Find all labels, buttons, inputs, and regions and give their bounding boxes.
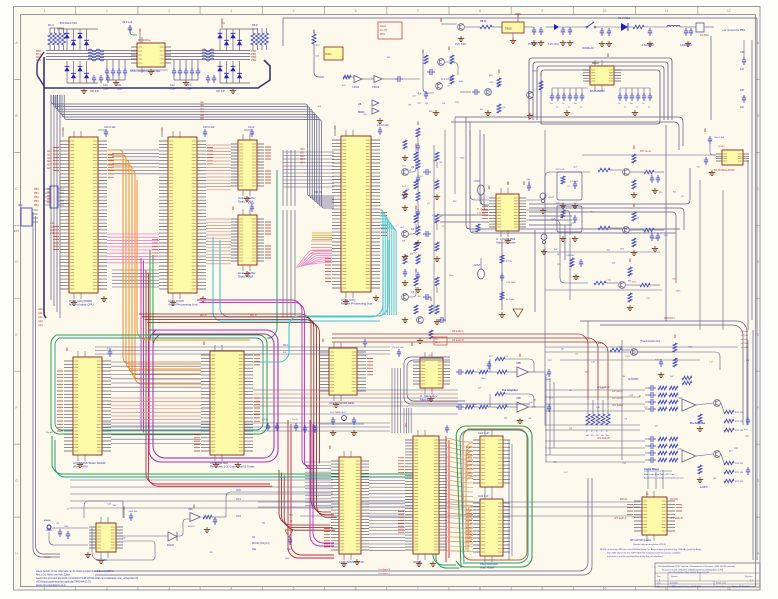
svg-text:+4V Ground for PBO: +4V Ground for PBO <box>722 29 745 32</box>
svg-text:7: 7 <box>417 9 419 13</box>
svg-text:Revision 2 Thumb: 1985-1995 2x: Revision 2 Thumb: 1985-1995 2xModel (2p0… <box>662 570 724 572</box>
svg-text:PB3: PB3 <box>34 200 39 203</box>
svg-text:5.2V CPU: 5.2V CPU <box>548 43 559 46</box>
svg-text:Size: Size <box>657 576 661 578</box>
svg-text:2: 2 <box>106 587 108 591</box>
svg-text:PB0: PB0 <box>34 188 39 191</box>
svg-text:Audio Mixer: Audio Mixer <box>644 467 659 471</box>
svg-text:G: G <box>15 479 18 483</box>
svg-text:10k: 10k <box>591 435 594 437</box>
svg-text:C9 0.1uF: C9 0.1uF <box>122 21 133 24</box>
svg-text:uP1 audio A: uP1 audio A <box>614 517 627 520</box>
svg-text:R1-4: R1-4 <box>48 23 54 27</box>
svg-text:21.477: 21.477 <box>380 29 388 32</box>
svg-text:10: 10 <box>603 9 607 13</box>
svg-text:8080-compat CPU: 8080-compat CPU <box>69 303 94 307</box>
svg-text:L6 C7xMPu 4u7: L6 C7xMPu 4u7 <box>330 412 346 414</box>
svg-text:R5-8: R5-8 <box>252 23 258 27</box>
svg-text:PA7.0: PA7.0 <box>200 314 207 317</box>
svg-text:Sheet 1 of 1: Sheet 1 of 1 <box>716 582 726 585</box>
svg-text:MIC(A): MIC(A) <box>620 498 628 501</box>
svg-text:C16 0.1uF: C16 0.1uF <box>203 126 215 129</box>
svg-text:C15 0.1uF: C15 0.1uF <box>104 126 116 129</box>
svg-text:1u: 1u <box>556 106 558 108</box>
svg-text:8: 8 <box>479 587 481 591</box>
svg-text:DB: DB <box>358 103 362 106</box>
svg-text:OC1: OC1 <box>236 498 242 501</box>
svg-text:Ch3 C3S (03@rev 234d) 234-033: Ch3 C3S (03@rev 234d) 234-033 Redp (CC) … <box>668 571 710 574</box>
svg-text:Drawn By:: Drawn By: <box>716 585 725 588</box>
svg-text:1u: 1u <box>618 103 620 105</box>
svg-text:1u: 1u <box>568 106 570 108</box>
svg-text:A10: A10 <box>38 307 43 311</box>
svg-text:C 100pF: C 100pF <box>570 181 579 183</box>
svg-text:PB1: PB1 <box>34 192 39 195</box>
svg-text:R7 1k: R7 1k <box>506 261 513 263</box>
svg-text:JP2: JP2 <box>18 203 23 207</box>
svg-text:R70 1W: R70 1W <box>735 412 744 414</box>
svg-text:Date: Date <box>657 582 661 585</box>
svg-text:VOUT: VOUT <box>548 197 555 199</box>
svg-text:VD4: VD4 <box>300 163 305 165</box>
svg-text:JRK OK: JRK OK <box>314 192 323 194</box>
svg-text:1u: 1u <box>636 106 638 108</box>
svg-text:10k: 10k <box>601 435 604 437</box>
svg-text:PUR 270: PUR 270 <box>528 43 538 46</box>
svg-text:1u: 1u <box>580 106 582 108</box>
svg-text:Auto RaWr: Auto RaWr <box>480 566 495 570</box>
svg-text:A14: A14 <box>38 323 43 327</box>
svg-text:9: 9 <box>541 587 543 591</box>
svg-text:5V: 5V <box>222 22 225 25</box>
svg-text:uP1 Audio B: uP1 Audio B <box>597 437 610 440</box>
svg-text:D6 1N4001: D6 1N4001 <box>618 17 631 20</box>
svg-text:AD4: AD4 <box>47 164 52 167</box>
svg-text:Cntlr 4 uF: Cntlr 4 uF <box>478 432 489 435</box>
svg-text:AUX/MP3: AUX/MP3 <box>628 378 639 381</box>
svg-text:A13: A13 <box>38 319 43 323</box>
svg-text:PA d: PA d <box>283 344 289 347</box>
svg-text:C31 R41: C31 R41 <box>566 255 575 257</box>
svg-text:AD5: AD5 <box>47 167 52 170</box>
svg-text:1uF: 1uF <box>740 106 745 109</box>
svg-text:4.6uF DPO: 4.6uF DPO <box>642 44 654 47</box>
svg-text:NOTE: to recreate 2ND bus over: NOTE: to recreate 2ND bus over LM20ba/Qu… <box>600 548 701 551</box>
svg-text:VD2: VD2 <box>300 156 305 158</box>
svg-text:1u: 1u <box>624 106 626 108</box>
svg-text:+9uF 4uF: +9uF 4uF <box>128 511 138 513</box>
svg-text:1: 1 <box>44 9 46 13</box>
svg-text:5: 5 <box>292 9 294 13</box>
svg-text:R72 1W: R72 1W <box>735 481 744 483</box>
svg-text:1u: 1u <box>550 103 552 105</box>
svg-text:SGS-THOMSON EMI filter: SGS-THOMSON EMI filter <box>130 69 161 73</box>
svg-text:XCK: XCK <box>236 489 241 492</box>
svg-text:U6B: U6B <box>516 397 521 400</box>
svg-text:4: 4 <box>230 9 232 13</box>
svg-text:Main node from Twin, SPY Vdd: Main node from Twin, SPY Vdd <box>644 473 675 476</box>
svg-text:File: File <box>657 586 660 588</box>
svg-text:AOUT: AOUT <box>474 264 481 267</box>
svg-text:PANDILAN: PANDILAN <box>582 47 594 50</box>
svg-text:PB1: PB1 <box>47 192 52 194</box>
svg-text:11: 11 <box>665 9 669 13</box>
svg-text:R70 1W: R70 1W <box>735 463 744 465</box>
svg-text:74C04: 74C04 <box>372 86 380 89</box>
svg-text:C18 0.1uF: C18 0.1uF <box>377 124 389 127</box>
svg-text:AD0: AD0 <box>47 150 52 153</box>
svg-text:uP1 A4: uP1 A4 <box>741 346 749 349</box>
svg-text:uP1 A3: uP1 A3 <box>741 342 749 345</box>
svg-text:Replica NT Republica: Replica NT Republica <box>732 586 751 588</box>
svg-text:PB4: PB4 <box>47 203 52 205</box>
svg-text:Audio flows cartridge and expa: Audio flows cartridge and expansion port <box>644 477 684 480</box>
svg-text:SBDUCK?: SBDUCK? <box>664 318 676 320</box>
svg-text:A-MP3: A-MP3 <box>700 486 708 489</box>
svg-text:C:\AllDocuments\..\nes_radio.S: C:\AllDocuments\..\nes_radio.SchDoc <box>670 585 702 588</box>
svg-text:9: 9 <box>541 9 543 13</box>
svg-text:VD1: VD1 <box>300 152 305 154</box>
svg-text:A5uAB: A5uAB <box>46 431 53 434</box>
svg-text:PA3: PA3 <box>36 58 42 62</box>
svg-text:3nF 3nF: 3nF 3nF <box>90 90 99 93</box>
svg-text:4N106: 4N106 <box>167 545 174 547</box>
svg-text:C32 10uF: C32 10uF <box>506 282 516 284</box>
svg-text:DF4RT: DF4RT <box>718 146 726 148</box>
svg-text:PB4: PB4 <box>34 204 39 207</box>
svg-text:4: 4 <box>230 587 232 591</box>
svg-text:PB2: PB2 <box>34 196 39 199</box>
svg-text:A12: A12 <box>50 229 55 232</box>
svg-text:33pF: 33pF <box>103 88 109 91</box>
svg-text:BC09+: BC09+ <box>188 526 195 528</box>
svg-text:7805: 7805 <box>505 27 512 31</box>
svg-text:3nF 3nF: 3nF 3nF <box>216 90 225 93</box>
svg-text:www.fi-sbo.princeton.pwr.ebclk: www.fi-sbo.princeton.pwr.ebclk.com/c/391… <box>36 577 139 580</box>
svg-text:R72 1W: R72 1W <box>735 430 744 432</box>
svg-text:1: 1 <box>44 587 46 591</box>
svg-text:Revision: Revision <box>745 576 752 578</box>
svg-text:GP. Aud B: GP. Aud B <box>612 397 623 400</box>
svg-text:3x 10uF: 3x 10uF <box>506 299 515 301</box>
svg-text:nt03-lonpat.caase/wron/as.tcap: nt03-lonpat.caase/wron/as.tcaple.jktp/79… <box>36 581 91 584</box>
svg-text:C5 4u7 uF0: C5 4u7 uF0 <box>392 347 404 349</box>
svg-text:L5u: L5u <box>435 339 438 341</box>
svg-text:RT7.4u 2x: RT7.4u 2x <box>640 150 652 153</box>
svg-text:OUT(A): OUT(A) <box>670 498 678 501</box>
svg-text:C3V: C3V <box>481 213 486 215</box>
svg-text:A11: A11 <box>38 311 43 315</box>
svg-text:0.1uF: 0.1uF <box>248 126 255 129</box>
svg-text:PS4 Span/Nintendo NTSC Famicom: PS4 Span/Nintendo NTSC Famicom / Videofa… <box>658 565 735 568</box>
svg-text:F: F <box>15 406 17 410</box>
svg-text:Latest version of this schemat: Latest version of this schematic can be … <box>36 570 115 573</box>
svg-text:SPY-207/08 Quartet: SPY-207/08 Quartet <box>630 539 652 542</box>
svg-text:RF MODULATOR: RF MODULATOR <box>714 168 735 172</box>
svg-text:Cas Audio B: Cas Audio B <box>378 568 391 571</box>
svg-text:10k: 10k <box>606 435 609 437</box>
svg-text:R71 1W: R71 1W <box>735 472 744 474</box>
svg-text:3: 3 <box>168 587 170 591</box>
svg-text:1u: 1u <box>648 106 650 108</box>
svg-text:R9 1k: R9 1k <box>480 20 487 23</box>
svg-text:OSC: OSC <box>325 52 332 56</box>
svg-text:R27 1.7k: R27 1.7k <box>556 169 565 171</box>
svg-text:A12: A12 <box>38 315 43 319</box>
svg-text:C4.7u: C4.7u <box>292 419 299 421</box>
svg-text:3: 3 <box>168 9 170 13</box>
svg-text:09-C9u (C9) (L1): 09-C9u (C9) (L1) <box>252 543 270 545</box>
svg-text:Video Encoder: Video Encoder <box>496 241 516 245</box>
svg-text:1u: 1u <box>562 103 564 105</box>
svg-text:5V0 DAL0 C90: 5V0 DAL0 C90 <box>60 22 77 25</box>
svg-text:4.6uF DPO: 4.6uF DPO <box>680 44 692 47</box>
svg-text:MBop: MBop <box>592 61 599 65</box>
svg-text:VD0: VD0 <box>300 149 305 151</box>
svg-text:A13: A13 <box>50 232 55 235</box>
svg-text:GP. Aud A: GP. Aud A <box>612 390 623 393</box>
svg-text:33pF: 33pF <box>170 88 176 91</box>
svg-text:A10: A10 <box>50 222 55 225</box>
svg-text:PB2: PB2 <box>47 196 52 198</box>
svg-text:C9u: C9u <box>252 549 257 551</box>
svg-text:uP1 A2: uP1 A2 <box>741 338 749 341</box>
svg-text:C67: C67 <box>740 89 745 92</box>
svg-text:U5B: U5B <box>516 362 521 365</box>
svg-text:10: 10 <box>603 587 607 591</box>
svg-text:7: 7 <box>417 587 419 591</box>
svg-text:AD1: AD1 <box>47 153 52 156</box>
svg-text:Pre Amplifier: Pre Amplifier <box>690 422 705 425</box>
svg-text:Clock: Clock <box>380 25 387 28</box>
svg-text:MABEL: MABEL <box>44 519 52 522</box>
svg-text:uP1 audio B: uP1 audio B <box>670 518 683 520</box>
svg-text:PB3: PB3 <box>47 199 52 201</box>
svg-text:12: 12 <box>727 9 731 13</box>
svg-text:AD3: AD3 <box>47 160 52 163</box>
svg-text:OC2: OC2 <box>236 515 242 518</box>
svg-text:1u: 1u <box>574 103 576 105</box>
svg-text:Pre-amplifier: Pre-amplifier <box>502 388 518 392</box>
svg-text:PB0: PB0 <box>47 189 52 191</box>
svg-text:C4.7u: C4.7u <box>262 419 269 421</box>
svg-text:Sep 2004 above the line DIPT/: Sep 2004 above the line DIPT/ MXCSD temp… <box>607 552 681 555</box>
svg-text:(Needs only an on-release SPDS: (Needs only an on-release SPDS) <box>633 543 666 546</box>
svg-text:Number: Number <box>671 575 678 578</box>
svg-text:uP1 A0: uP1 A0 <box>741 330 749 333</box>
svg-text:1u: 1u <box>642 103 644 105</box>
svg-text:10k: 10k <box>586 435 589 437</box>
svg-text:33pF: 33pF <box>186 88 192 91</box>
svg-text:33pF: 33pF <box>117 88 123 91</box>
svg-text:0.1uF: 0.1uF <box>248 202 255 205</box>
svg-text:R71 1W: R71 1W <box>735 421 744 423</box>
svg-text:DVC CPU: DVC CPU <box>455 43 466 46</box>
svg-text:and move a out the sporthersbo: and move a out the sporthersboard (the t… <box>607 555 663 558</box>
svg-text:8: 8 <box>479 9 481 13</box>
svg-text:GP audio A: GP audio A <box>452 330 464 333</box>
svg-text:6: 6 <box>355 587 357 591</box>
svg-text:3-9-2023: 3-9-2023 <box>670 583 678 585</box>
svg-text:Rev.1 Oct. Meist over time, 12: Rev.1 Oct. Meist over time, 12pcs <box>36 574 71 577</box>
svg-text:C6u 0.1uF: C6u 0.1uF <box>714 137 725 139</box>
svg-text:10k: 10k <box>596 435 599 437</box>
svg-text:PB3: PB3 <box>251 58 257 62</box>
svg-text:PA7.0: PA7.0 <box>250 314 257 317</box>
svg-text:Cntlr 4 uF: Cntlr 4 uF <box>478 495 489 498</box>
svg-text:VD3: VD3 <box>300 159 305 161</box>
svg-text:1u: 1u <box>630 103 632 105</box>
svg-text:MHz: MHz <box>380 33 386 36</box>
svg-text:GP audio B: GP audio B <box>452 340 464 342</box>
svg-text:www.l-cbn.crantotberrin.co.jp: www.l-cbn.crantotberrin.co.jp <box>36 584 66 587</box>
svg-text:C-V 1730k: C-V 1730k <box>441 77 454 81</box>
svg-text:Cas Audio C: Cas Audio C <box>378 572 391 575</box>
svg-text:1uF: 1uF <box>740 68 745 71</box>
svg-text:74C04: 74C04 <box>352 86 360 89</box>
svg-text:6: 6 <box>355 9 357 13</box>
svg-text:MABEL: MABEL <box>44 556 52 559</box>
svg-text:(Transmission Rx): (Transmission Rx) <box>640 340 660 343</box>
svg-text:uP1 A1: uP1 A1 <box>741 334 749 337</box>
svg-text:AD2: AD2 <box>47 157 52 160</box>
svg-text:BA1645BMP: BA1645BMP <box>590 89 605 93</box>
svg-text:EXT: EXT <box>14 229 19 233</box>
svg-text:5: 5 <box>292 587 294 591</box>
svg-text:U6A: U6A <box>188 508 193 511</box>
svg-text:DC BLK: DC BLK <box>700 34 709 37</box>
svg-text:2: 2 <box>106 9 108 13</box>
